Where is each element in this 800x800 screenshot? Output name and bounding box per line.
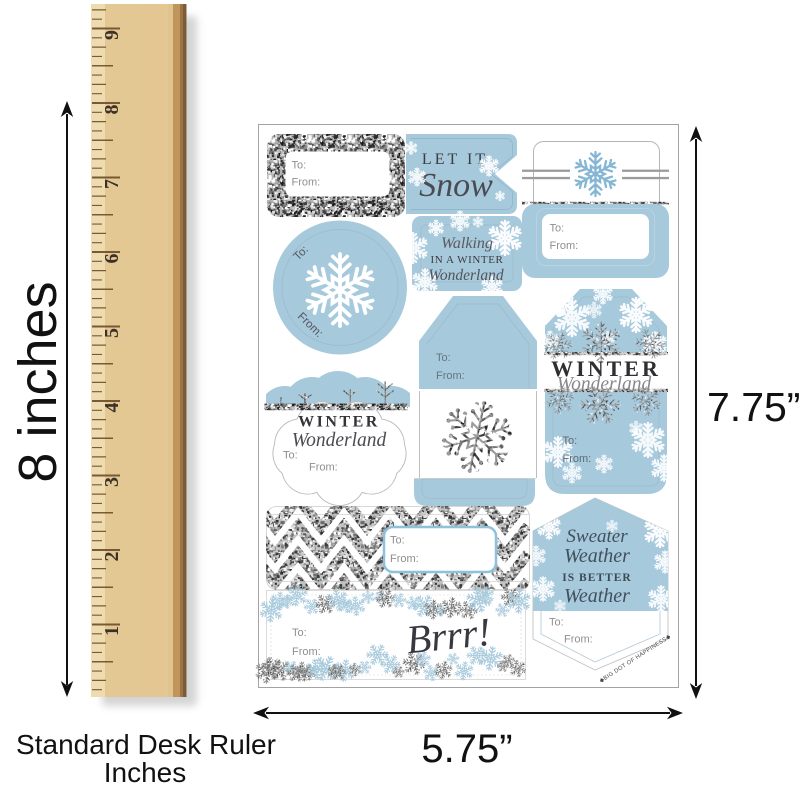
- svg-text:Wonderland: Wonderland: [557, 374, 652, 395]
- svg-text:Wonderland: Wonderland: [428, 267, 503, 284]
- svg-text:IS BETTER: IS BETTER: [562, 572, 631, 584]
- svg-text:1: 1: [101, 626, 123, 636]
- svg-text:7.75”: 7.75”: [707, 384, 800, 430]
- svg-text:From:: From:: [550, 240, 579, 252]
- svg-text:Walking: Walking: [441, 235, 493, 252]
- svg-text:To:: To:: [549, 617, 564, 629]
- svg-text:Wonderland: Wonderland: [292, 430, 387, 451]
- svg-text:2: 2: [101, 552, 123, 562]
- svg-text:WINTER: WINTER: [298, 414, 380, 431]
- svg-text:5: 5: [101, 328, 123, 338]
- svg-text:Sweater: Sweater: [566, 526, 628, 547]
- svg-text:8: 8: [101, 105, 123, 115]
- svg-text:To:: To:: [436, 352, 451, 364]
- svg-text:9: 9: [101, 30, 123, 40]
- svg-text:From:: From:: [564, 634, 593, 646]
- svg-text:From:: From:: [390, 553, 419, 565]
- svg-text:To:: To:: [563, 435, 578, 447]
- svg-text:To:: To:: [292, 627, 307, 639]
- svg-text:3: 3: [101, 477, 123, 487]
- svg-text:From:: From:: [292, 177, 321, 189]
- svg-text:To:: To:: [292, 160, 307, 172]
- svg-text:To:: To:: [283, 450, 298, 462]
- svg-text:5.75”: 5.75”: [421, 727, 512, 771]
- svg-text:From:: From:: [309, 462, 338, 474]
- svg-text:IN A WINTER: IN A WINTER: [430, 254, 503, 266]
- svg-text:From:: From:: [436, 370, 465, 382]
- svg-text:6: 6: [101, 254, 123, 264]
- svg-text:Weather: Weather: [564, 545, 630, 567]
- svg-text:To:: To:: [390, 535, 405, 547]
- svg-text:LET IT: LET IT: [422, 151, 488, 168]
- svg-text:Brrr!: Brrr!: [404, 609, 493, 663]
- svg-text:8 inches: 8 inches: [8, 281, 68, 482]
- svg-text:From:: From:: [563, 453, 592, 465]
- svg-text:Inches: Inches: [104, 757, 187, 788]
- svg-text:Standard Desk Ruler: Standard Desk Ruler: [16, 729, 276, 760]
- svg-text:Weather: Weather: [564, 585, 630, 607]
- svg-text:From:: From:: [292, 646, 321, 658]
- svg-text:To:: To:: [550, 223, 565, 235]
- svg-text:4: 4: [101, 403, 123, 413]
- svg-text:7: 7: [101, 179, 123, 189]
